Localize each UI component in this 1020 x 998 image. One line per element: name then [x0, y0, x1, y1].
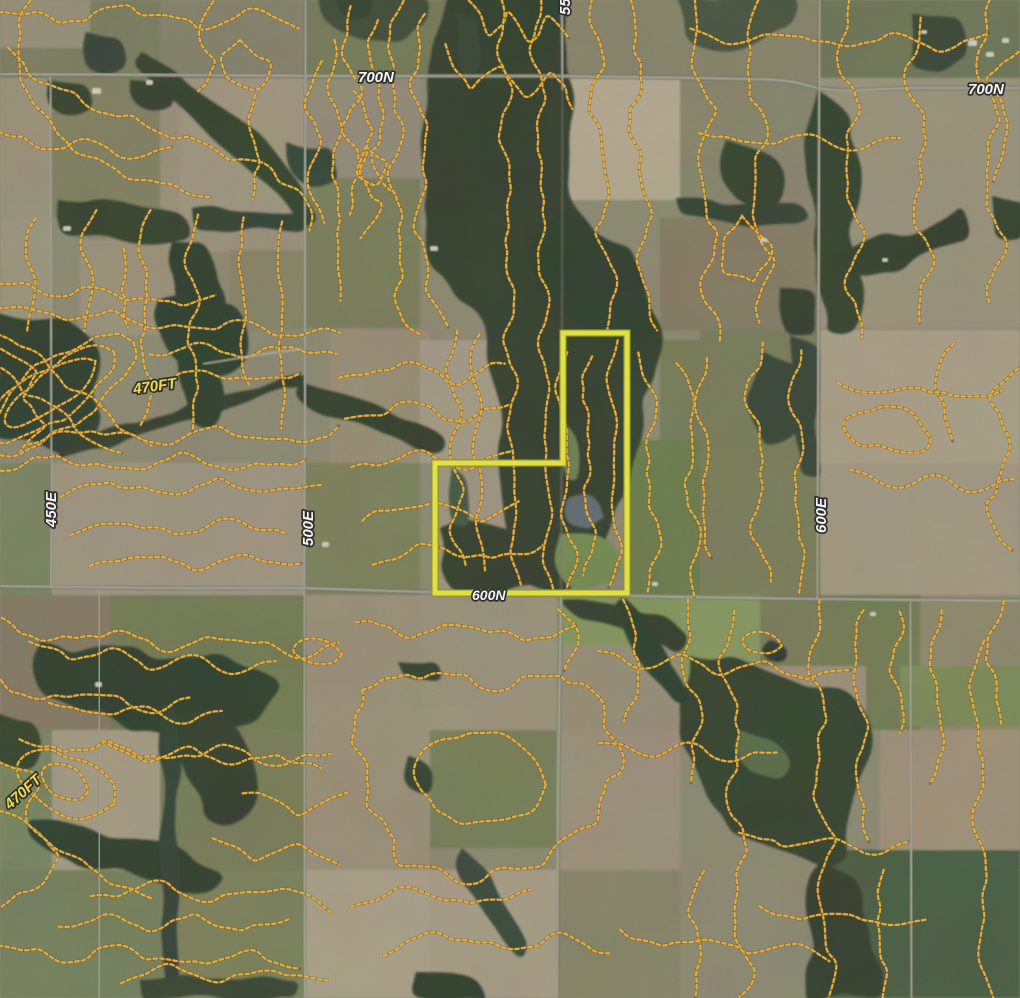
svg-text:600N: 600N: [472, 587, 506, 603]
svg-text:600E: 600E: [813, 497, 830, 533]
svg-text:450E: 450E: [43, 491, 60, 528]
svg-text:550E: 550E: [557, 0, 574, 15]
svg-text:700N: 700N: [358, 69, 395, 86]
svg-text:700N: 700N: [968, 81, 1005, 98]
svg-text:500E: 500E: [300, 510, 317, 546]
